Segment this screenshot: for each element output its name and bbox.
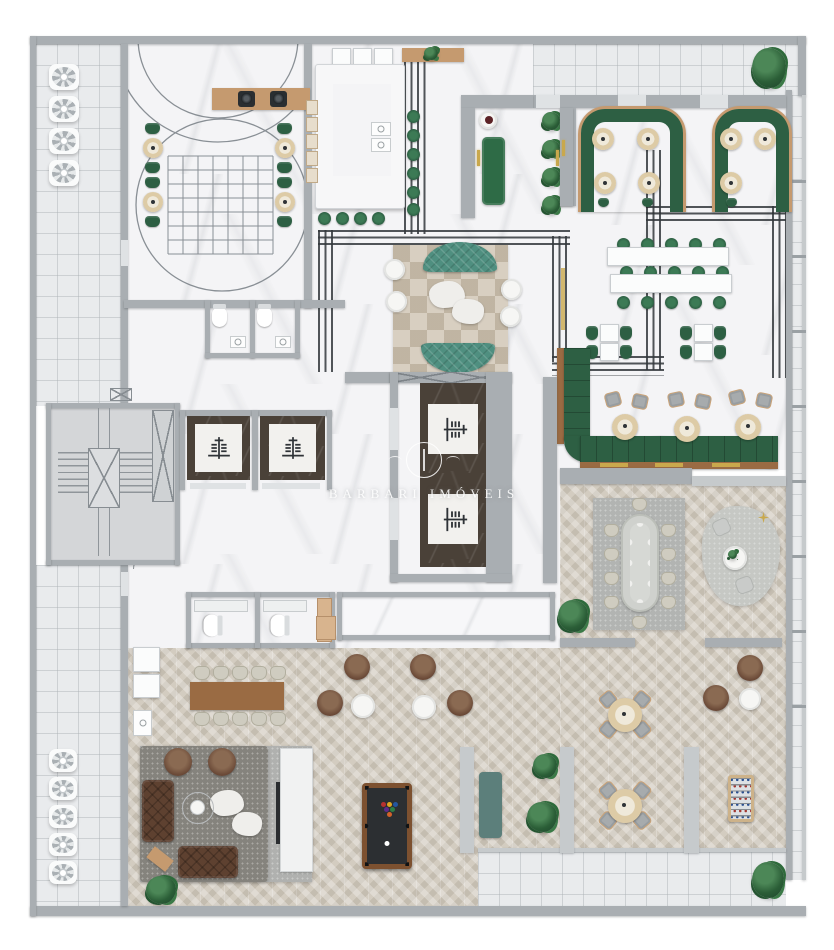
partition-wall	[460, 747, 474, 853]
bar-stool	[407, 129, 420, 142]
plant	[542, 168, 560, 186]
hvac-unit	[49, 805, 77, 828]
dining-chair	[270, 666, 286, 680]
square-table	[694, 343, 713, 361]
wall-games	[705, 638, 782, 647]
corridor-floor-upper	[36, 44, 121, 406]
pantry-shelf	[306, 117, 318, 132]
wall-games	[560, 638, 635, 647]
toilet	[204, 615, 219, 637]
wall-stair	[46, 403, 51, 565]
door-opening	[121, 572, 128, 596]
balcony-tick	[792, 630, 806, 633]
dining-chair	[631, 393, 650, 411]
toilet	[212, 308, 227, 327]
dining-chair	[694, 393, 713, 411]
hvac-unit	[49, 861, 77, 884]
plant	[533, 754, 557, 778]
balcony-tick	[792, 405, 806, 408]
elevator-threshold	[190, 483, 246, 489]
watermark-logo-wing	[446, 456, 460, 466]
shaft-symbol	[110, 388, 132, 401]
dining-chair	[714, 345, 726, 359]
cloud-coffee-table	[452, 299, 484, 324]
hvac-unit	[49, 128, 79, 154]
wall-core	[390, 574, 512, 582]
elevator-door-ornament	[195, 424, 242, 472]
dining-chair	[661, 596, 676, 609]
chesterfield-sofa	[178, 846, 238, 878]
gold-trim	[712, 463, 740, 467]
wall-marble-room	[550, 592, 555, 640]
dining-chair	[604, 524, 619, 537]
shelf-plant	[424, 47, 438, 60]
cafe-chair	[145, 177, 160, 188]
wall-corridor-upper	[121, 44, 128, 403]
watermark-text: BARBARI IMÓVEIS	[274, 486, 574, 502]
bar-stool	[407, 203, 420, 216]
corridor-floor-lower	[36, 565, 121, 906]
bar-stool	[407, 167, 420, 180]
toilet	[257, 308, 272, 327]
cocktail-table	[739, 688, 761, 710]
dining-chair	[661, 572, 676, 585]
wall-wc	[186, 592, 191, 648]
dining-chair	[680, 345, 692, 359]
bar-stool	[407, 186, 420, 199]
decor-tray	[485, 116, 493, 124]
bar-stool	[354, 212, 367, 225]
wall-core-right	[543, 377, 557, 583]
leather-armchair	[164, 748, 192, 776]
wall-wc	[186, 643, 335, 648]
billiard-balls	[381, 802, 386, 807]
dining-chair	[194, 666, 210, 680]
cafe-chair	[277, 216, 292, 227]
games-table	[608, 698, 642, 732]
wall-core	[486, 372, 512, 582]
wall-sconce	[556, 150, 559, 166]
vanity-counter	[194, 600, 248, 612]
pantry-shelf	[306, 134, 318, 149]
bar-stool	[372, 212, 385, 225]
terrace-bottom-floor	[478, 852, 786, 906]
games-table	[608, 789, 642, 823]
cafe-chair	[145, 162, 160, 173]
dining-stool	[665, 296, 678, 309]
hvac-unit	[49, 749, 77, 772]
round-armchair	[317, 690, 343, 716]
kitchenette-appliance	[133, 674, 160, 698]
balcony-tick	[792, 330, 806, 333]
bench	[479, 772, 502, 838]
private-dining-table	[621, 514, 659, 612]
booth-table	[720, 128, 742, 150]
plant	[542, 196, 560, 214]
wall-sconce	[562, 140, 565, 156]
dining-chair	[232, 712, 248, 726]
watermark-logo-wing	[388, 456, 402, 466]
kitchenette-appliance	[133, 647, 160, 672]
wall-vestibule-left	[461, 108, 475, 218]
dining-chair	[661, 524, 676, 537]
hvac-unit	[49, 64, 79, 90]
dining-chair	[251, 666, 267, 680]
cafe-table	[275, 192, 295, 212]
dining-chair	[232, 666, 248, 680]
dining-stool	[689, 296, 702, 309]
gourmet-console	[212, 88, 310, 110]
wall-wc	[255, 592, 260, 648]
wall-stair	[46, 403, 180, 408]
wall-outer-left	[30, 36, 36, 916]
square-table	[600, 343, 619, 361]
chesterfield-sofa	[142, 780, 174, 842]
terrace-door	[700, 95, 728, 108]
dining-chair	[604, 572, 619, 585]
cocktail-table	[351, 694, 375, 718]
plant	[558, 600, 588, 632]
cloud-coffee-table	[232, 812, 262, 836]
dining-chair	[680, 326, 692, 340]
wall-vestibule-header	[461, 95, 533, 108]
wall-outer-bottom	[30, 906, 806, 916]
elevator-threshold	[390, 498, 398, 540]
round-armchair	[344, 654, 370, 680]
elevator-shaft-symbol	[152, 410, 174, 502]
wall-elevator	[252, 410, 258, 490]
dining-chair	[632, 616, 647, 629]
wall-elevator	[327, 410, 332, 490]
wall-marble-room	[337, 592, 555, 597]
wall-outer-right-top	[798, 36, 806, 96]
kitchen-sink	[371, 122, 391, 136]
wall-restaurant-left	[560, 108, 573, 206]
round-armchair	[410, 654, 436, 680]
communal-table	[607, 247, 729, 266]
wall-marble-room	[337, 635, 555, 640]
hvac-unit	[49, 96, 79, 122]
cafe-chair	[277, 162, 292, 173]
vestibule-bench	[482, 137, 505, 205]
square-table	[600, 324, 619, 342]
gold-drape	[561, 268, 565, 330]
dining-chair	[586, 326, 598, 340]
plant	[146, 876, 176, 904]
booth-seating	[712, 106, 792, 212]
tv-console	[280, 748, 313, 872]
kitchen-sink	[371, 138, 391, 152]
sink	[230, 336, 246, 348]
lounge-pouf	[384, 259, 405, 280]
wall-outer-top	[30, 36, 806, 44]
wall-core	[345, 372, 390, 383]
stair-landing	[88, 448, 120, 508]
dining-chair	[714, 326, 726, 340]
banquette-back	[557, 348, 564, 444]
bar-stool	[336, 212, 349, 225]
dining-chair	[632, 498, 647, 511]
wall-wc	[295, 300, 300, 358]
balcony-tick	[792, 705, 806, 708]
wood-door	[316, 616, 336, 640]
booth-table	[638, 172, 660, 194]
wall-ledge	[692, 476, 786, 486]
wall-sconce	[477, 150, 480, 166]
bar-stool	[407, 110, 420, 123]
toilet	[271, 615, 286, 637]
wall-gourmet-bottom	[124, 300, 345, 308]
dining-chair	[604, 548, 619, 561]
communal-table	[610, 274, 732, 293]
wall-stair	[46, 560, 180, 565]
bar-stool	[318, 212, 331, 225]
wall-marble-room	[337, 592, 342, 640]
dining-chair	[251, 712, 267, 726]
round-armchair	[703, 685, 729, 711]
dining-chair	[604, 596, 619, 609]
partition-wall	[684, 747, 699, 853]
hvac-unit	[49, 160, 79, 186]
foosball-table	[728, 775, 754, 822]
table-plant	[728, 550, 737, 559]
cafe-chair	[277, 123, 292, 134]
dining-stool	[641, 296, 654, 309]
elevator-threshold	[390, 408, 398, 450]
plant	[752, 48, 786, 88]
floor-plan: BARBARI IMÓVEIS	[0, 0, 834, 950]
marble-room-floor	[337, 592, 555, 640]
pantry-shelf	[306, 100, 318, 115]
partition-wall	[560, 747, 574, 853]
dining-chair	[194, 712, 210, 726]
gold-trim	[600, 463, 628, 467]
dining-chair	[755, 392, 774, 410]
banquette-table	[612, 414, 638, 440]
dining-chair	[620, 326, 632, 340]
cafe-table	[275, 138, 295, 158]
wall-wc	[186, 592, 335, 597]
watermark-logo	[406, 442, 442, 478]
leather-armchair	[208, 748, 236, 776]
banquette-table	[735, 414, 761, 440]
balcony-tick	[792, 555, 806, 558]
wall-wc	[205, 353, 300, 358]
plant	[527, 802, 557, 832]
dining-chair	[620, 345, 632, 359]
balcony-tick	[792, 255, 806, 258]
wall-wc	[205, 300, 210, 358]
wall-corridor-lower	[121, 565, 128, 906]
wall-elevator	[180, 410, 185, 490]
kitchenette-sink	[133, 710, 152, 736]
dining-stool	[617, 296, 630, 309]
cocktail-table	[412, 695, 436, 719]
hvac-unit	[49, 777, 77, 800]
cafe-table	[143, 192, 163, 212]
balcony-tick	[792, 480, 806, 483]
lounge-pouf	[386, 291, 407, 312]
dining-chair	[270, 712, 286, 726]
booth-table	[594, 172, 616, 194]
balcony-rail	[802, 95, 806, 880]
banquette-table	[674, 416, 700, 442]
wall-private-dining	[560, 468, 692, 484]
pantry-shelf	[306, 151, 318, 166]
square-table	[694, 324, 713, 342]
cafe-chair	[145, 123, 160, 134]
pantry-shelf	[306, 168, 318, 183]
lounge-pouf	[500, 306, 521, 327]
vanity-counter	[263, 600, 307, 612]
hvac-unit	[49, 833, 77, 856]
terrace-door	[536, 95, 560, 108]
gold-trim	[655, 463, 683, 467]
plant	[752, 862, 784, 898]
booth-table	[637, 128, 659, 150]
booth-table	[720, 172, 742, 194]
bar-stool	[407, 148, 420, 161]
turntable-disc	[273, 93, 284, 104]
door-opening	[121, 240, 128, 266]
wall-core	[390, 372, 398, 582]
booth-table	[754, 128, 776, 150]
cafe-chair	[145, 216, 160, 227]
tv-screen	[276, 782, 280, 844]
elevator-door-ornament	[269, 424, 316, 472]
wall-wc	[250, 300, 255, 358]
dining-chair	[661, 548, 676, 561]
cafe-table	[143, 138, 163, 158]
sink	[275, 336, 291, 348]
banquette-seat	[564, 348, 590, 440]
balcony-tick	[792, 180, 806, 183]
pool-table	[362, 783, 412, 869]
round-armchair	[447, 690, 473, 716]
lamp-shade	[190, 800, 205, 815]
dining-chair	[213, 666, 229, 680]
terrace-edge	[478, 848, 786, 852]
lounge-pouf	[501, 279, 522, 300]
booth-table	[592, 128, 614, 150]
dining-chair	[213, 712, 229, 726]
plant	[542, 112, 560, 130]
cafe-chair	[277, 177, 292, 188]
turntable-disc	[241, 93, 252, 104]
round-armchair	[737, 655, 763, 681]
booth-seating	[578, 106, 686, 212]
dining-stool	[713, 296, 726, 309]
dining-table	[190, 682, 284, 710]
